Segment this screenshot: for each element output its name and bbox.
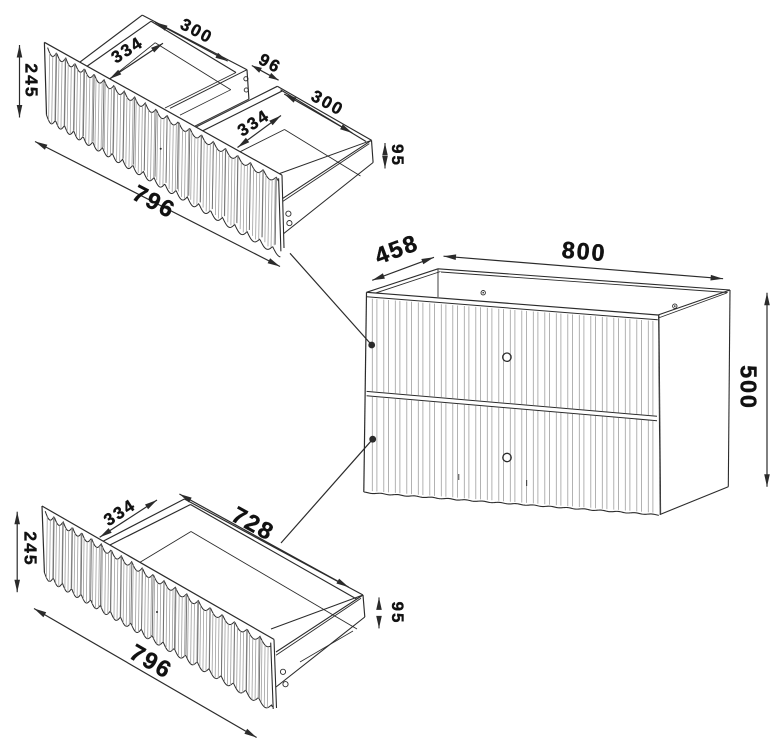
svg-text:500: 500 [735,365,761,410]
svg-text:245: 245 [22,63,42,98]
svg-text:95: 95 [388,144,407,167]
svg-text:245: 245 [20,531,40,566]
svg-text:800: 800 [561,237,608,266]
svg-text:95: 95 [388,602,407,625]
